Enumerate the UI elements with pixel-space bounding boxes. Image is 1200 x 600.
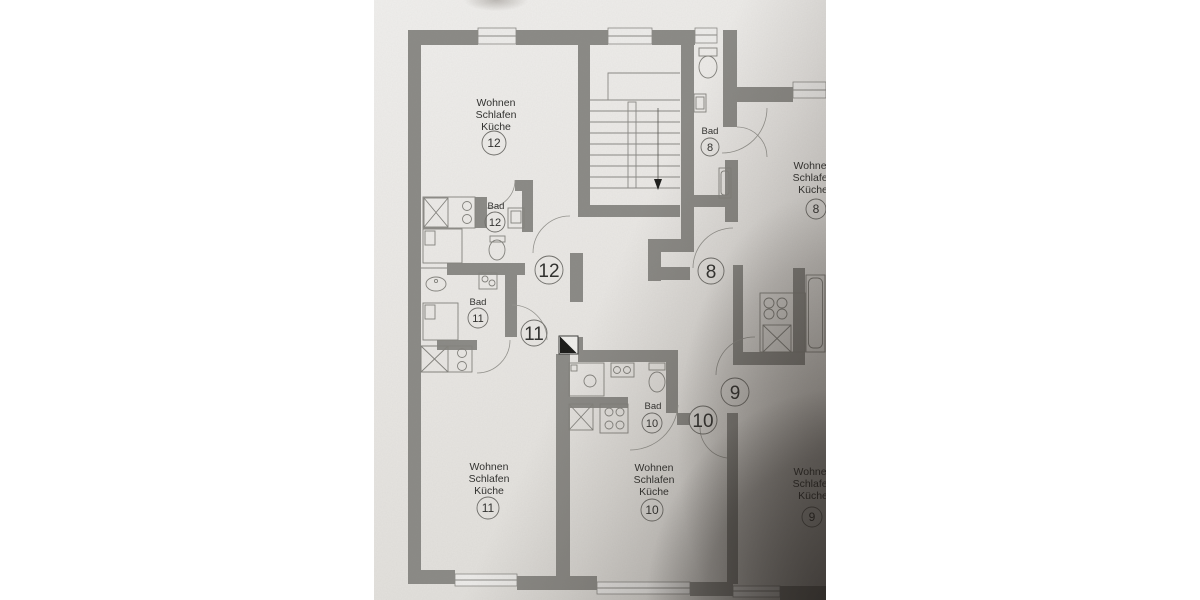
paper-grain-texture [374,0,826,600]
floor-plan-drawing: Wohnen Schlafen Küche 12 Wohnen Schlafen… [374,0,826,600]
floor-plan-paper: Wohnen Schlafen Küche 12 Wohnen Schlafen… [374,0,826,600]
photo-canvas: Wohnen Schlafen Küche 12 Wohnen Schlafen… [0,0,1200,600]
